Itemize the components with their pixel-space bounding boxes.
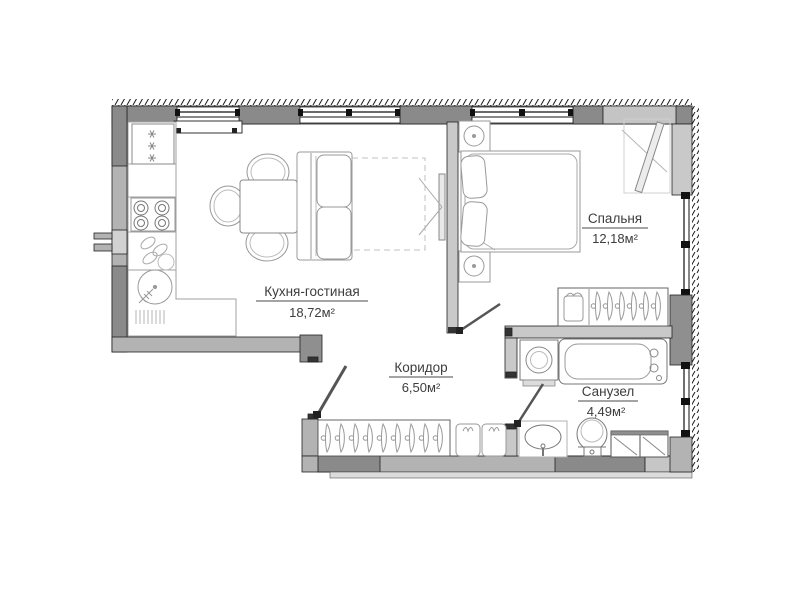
window-kitchen bbox=[174, 107, 242, 133]
wardrobe-bedroom bbox=[558, 288, 668, 326]
room-area: 4,49м² bbox=[587, 404, 626, 419]
washing-machine-icon bbox=[520, 340, 558, 386]
shoe-cabinet bbox=[456, 424, 506, 456]
room-name: Кухня-гостиная bbox=[264, 284, 360, 299]
room-label-kitchen-living: Кухня-гостиная 18,72м² bbox=[256, 284, 368, 320]
window-bathroom-right bbox=[681, 362, 690, 437]
window-living bbox=[298, 107, 400, 123]
floor-plan-canvas: Кухня-гостиная 18,72м² Спальня 12,18м² К… bbox=[0, 0, 812, 600]
pillow bbox=[460, 201, 488, 247]
living-bottom-wall bbox=[112, 335, 322, 362]
nightstand bbox=[459, 121, 490, 152]
window-bedroom-right bbox=[681, 192, 690, 296]
nightstand bbox=[459, 251, 490, 282]
bedroom-door bbox=[456, 304, 500, 334]
room-area: 12,18м² bbox=[592, 231, 638, 246]
pillow bbox=[460, 155, 488, 199]
right-wall bbox=[670, 124, 692, 472]
room-area: 18,72м² bbox=[289, 305, 335, 320]
room-name: Санузел bbox=[582, 384, 635, 399]
toilet-icon bbox=[577, 418, 607, 456]
room-name: Коридор bbox=[394, 360, 447, 375]
room-label-bedroom: Спальня 12,18м² bbox=[582, 211, 648, 246]
room-label-bathroom: Санузел 4,49м² bbox=[578, 384, 638, 419]
corridor-left-wall bbox=[302, 357, 318, 456]
tv-icon bbox=[419, 174, 445, 240]
sofa-bed-outline bbox=[352, 158, 425, 250]
partition-wall bbox=[447, 122, 458, 333]
shelf-unit bbox=[611, 431, 668, 457]
floor-plan: Кухня-гостиная 18,72м² Спальня 12,18м² К… bbox=[0, 0, 812, 600]
entrance-door bbox=[313, 366, 346, 418]
room-name: Спальня bbox=[588, 211, 642, 226]
wardrobe-corridor bbox=[318, 420, 450, 456]
room-area: 6,50м² bbox=[402, 380, 441, 395]
room-label-corridor: Коридор 6,50м² bbox=[389, 360, 453, 395]
fridge-icon bbox=[132, 124, 174, 164]
dining-table bbox=[240, 180, 297, 233]
tv-corner-icon bbox=[622, 119, 670, 193]
stove-icon bbox=[131, 198, 175, 231]
left-wall bbox=[94, 106, 127, 352]
bathtub-icon bbox=[559, 339, 667, 384]
sofa bbox=[297, 152, 352, 260]
bottom-wall bbox=[302, 456, 692, 478]
bed bbox=[460, 151, 580, 252]
sink-icon bbox=[519, 421, 567, 457]
